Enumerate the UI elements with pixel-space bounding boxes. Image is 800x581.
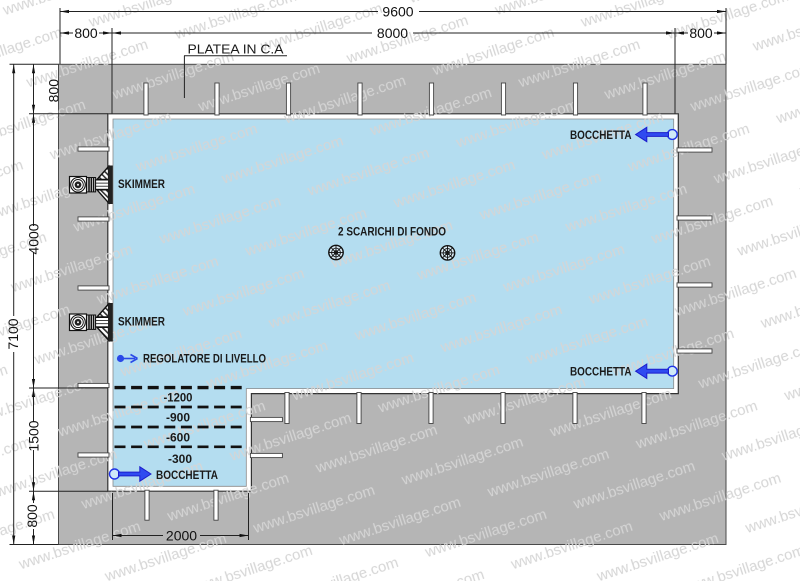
svg-text:1500: 1500	[25, 420, 41, 451]
svg-text:BOCCHETTA: BOCCHETTA	[156, 468, 218, 482]
svg-text:-900: -900	[166, 411, 190, 425]
svg-text:800: 800	[689, 25, 713, 41]
svg-text:4000: 4000	[25, 223, 41, 254]
svg-text:800: 800	[24, 504, 40, 528]
svg-text:800: 800	[46, 79, 62, 103]
svg-text:800: 800	[74, 25, 98, 41]
svg-text:BOCCHETTA: BOCCHETTA	[570, 365, 632, 379]
svg-text:9600: 9600	[382, 3, 413, 19]
svg-text:8000: 8000	[377, 25, 408, 41]
svg-text:PLATEA IN C.A: PLATEA IN C.A	[188, 42, 284, 57]
svg-text:REGOLATORE DI LIVELLO: REGOLATORE DI LIVELLO	[143, 351, 266, 365]
svg-text:SKIMMER: SKIMMER	[118, 315, 165, 329]
svg-text:-600: -600	[166, 431, 190, 445]
svg-text:2 SCARICHI DI FONDO: 2 SCARICHI DI FONDO	[338, 225, 446, 239]
svg-text:BOCCHETTA: BOCCHETTA	[570, 128, 632, 142]
svg-text:-300: -300	[168, 452, 192, 466]
svg-text:SKIMMER: SKIMMER	[118, 177, 165, 191]
svg-text:7100: 7100	[5, 318, 21, 349]
svg-text:2000: 2000	[166, 527, 197, 543]
svg-text:-1200: -1200	[164, 391, 193, 405]
